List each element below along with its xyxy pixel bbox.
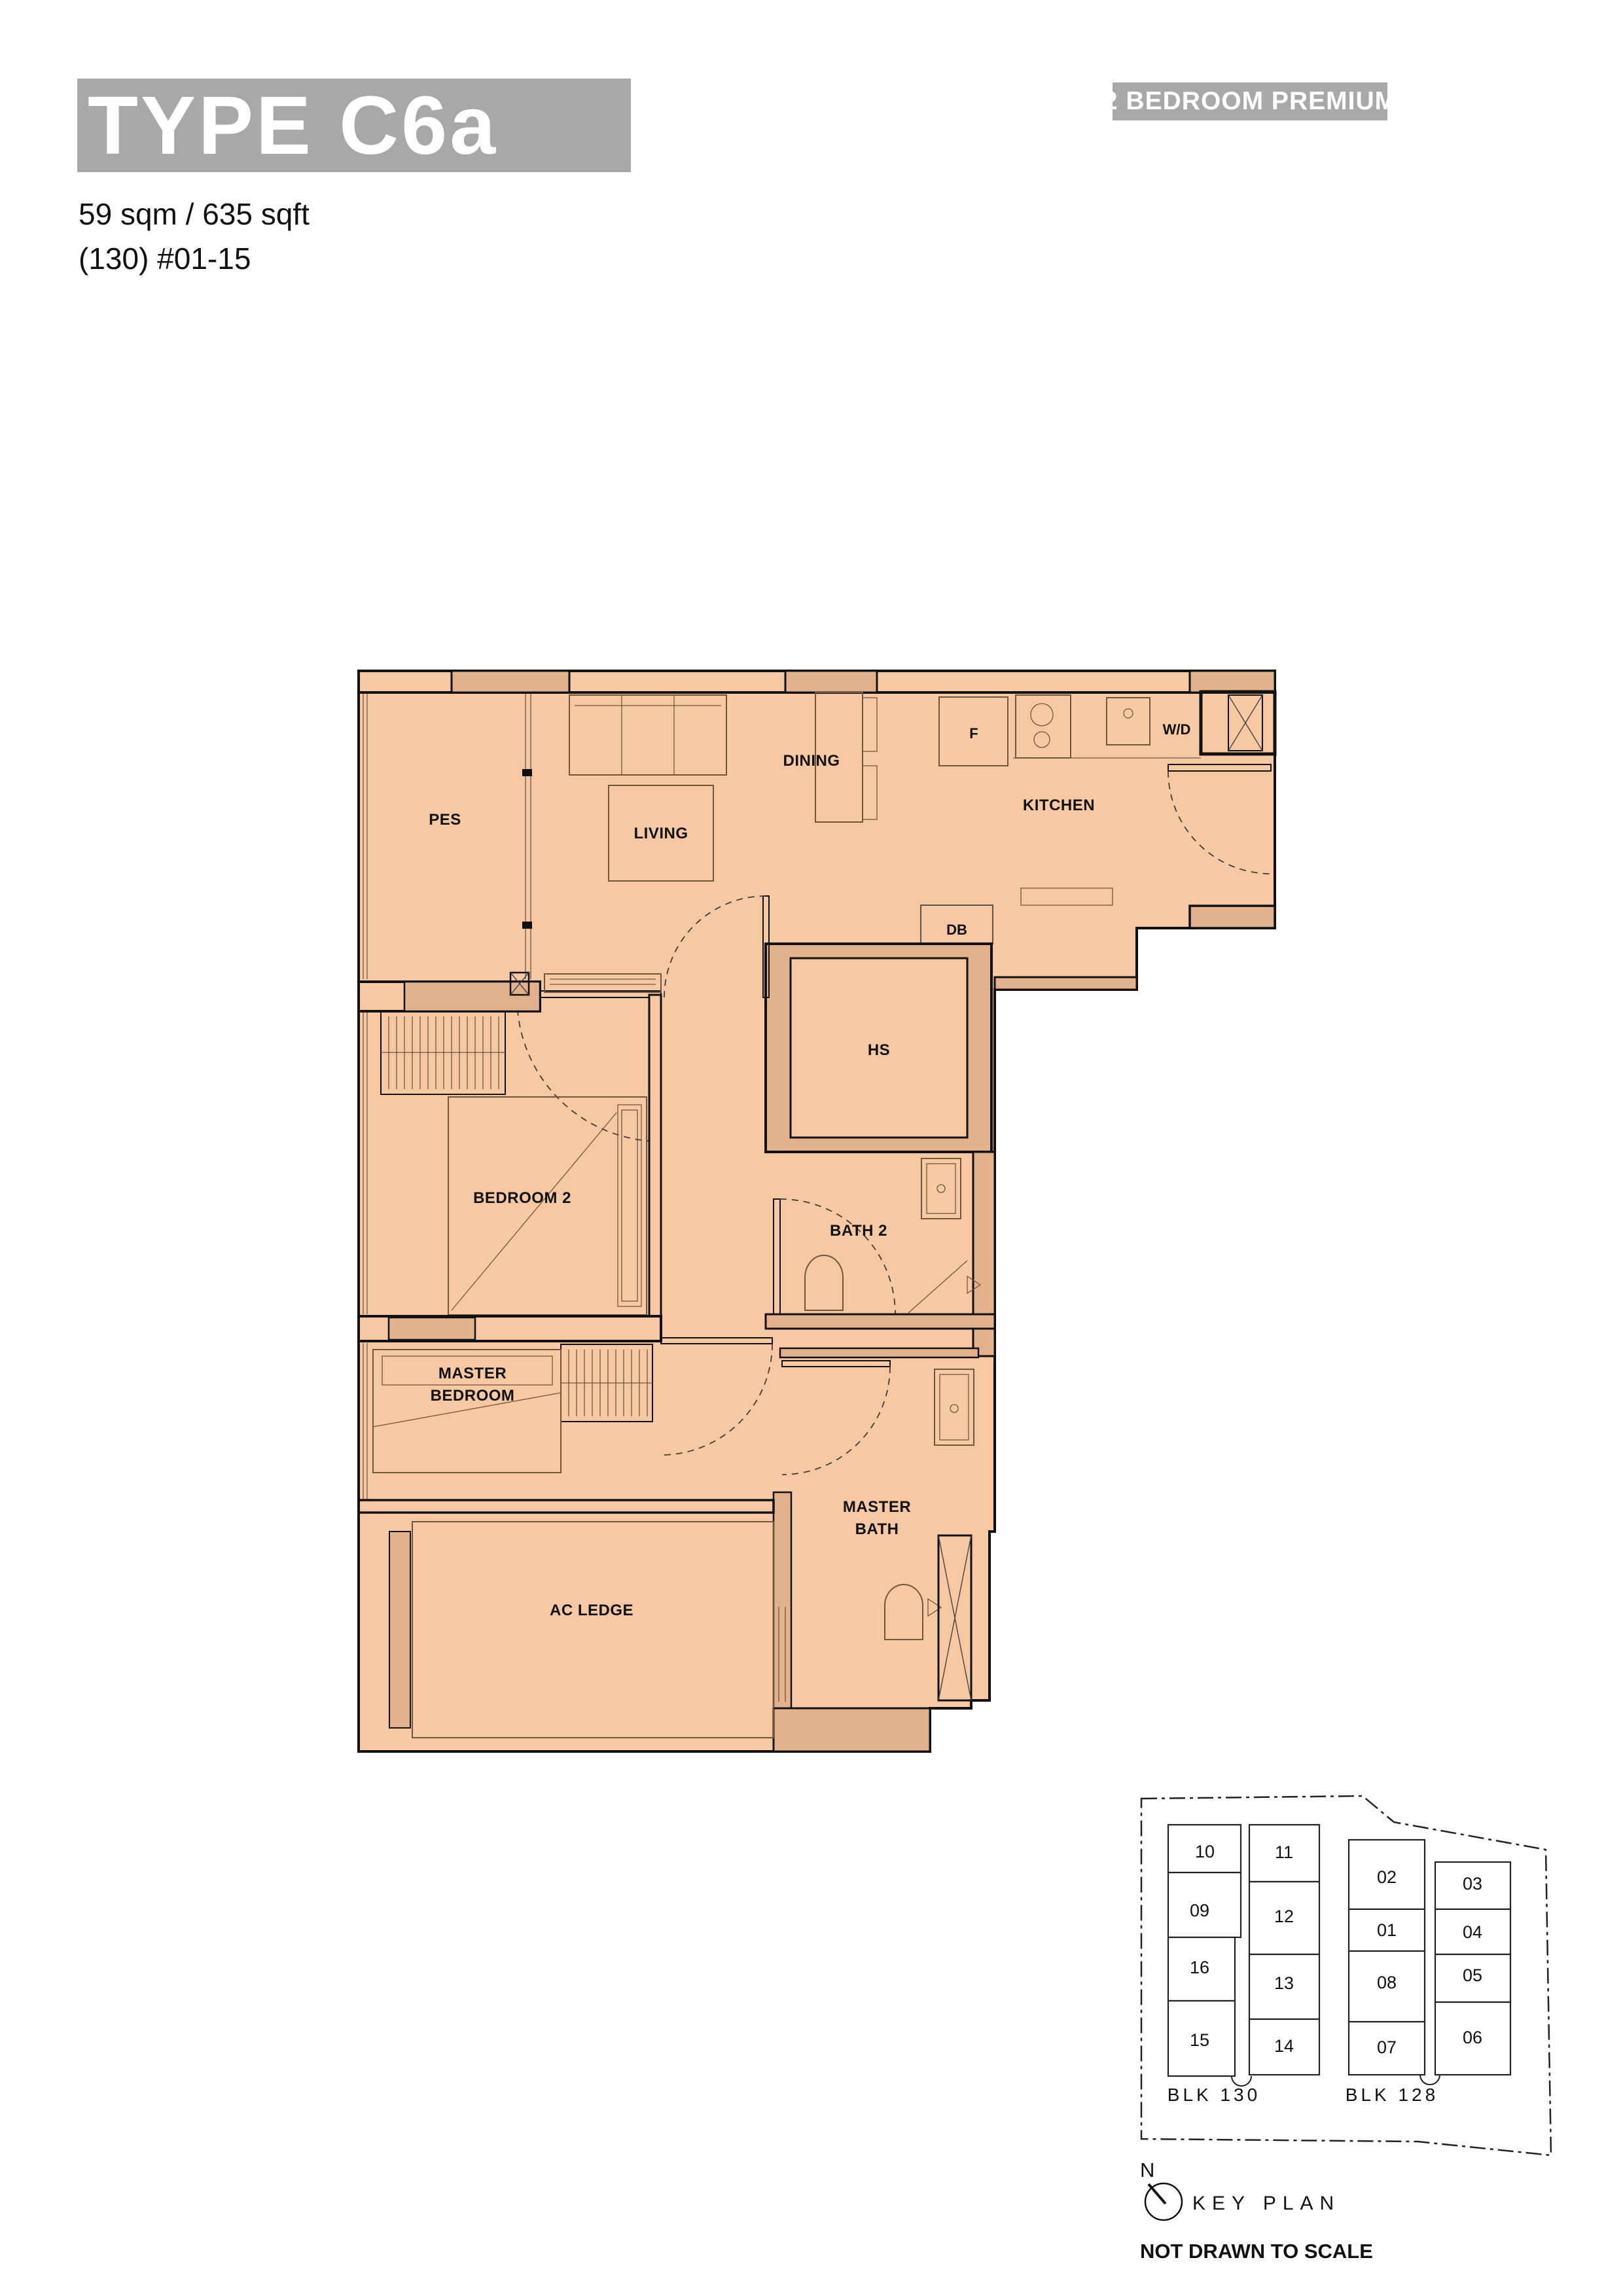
bedroom-category-badge: 2 BEDROOM PREMIUM xyxy=(1113,82,1387,120)
kp-blk-130: BLK 130 xyxy=(1168,2085,1260,2105)
badge-label: 2 BEDROOM PREMIUM xyxy=(1103,87,1397,116)
label-washer-dryer: W/D xyxy=(1163,721,1191,738)
label-bath2: BATH 2 xyxy=(830,1222,887,1240)
pes-bottom-wall-block xyxy=(404,982,540,1011)
kp-label-14: 14 xyxy=(1274,2036,1294,2056)
label-kitchen: KITCHEN xyxy=(1023,797,1095,814)
kp-label-07: 07 xyxy=(1377,2037,1397,2057)
unit-type-label: TYPE C6a xyxy=(88,78,498,173)
label-master-bath-2: BATH xyxy=(855,1520,899,1538)
unit-floor-outline xyxy=(359,671,1275,1751)
kp-arc-2 xyxy=(1420,2075,1440,2085)
label-ac-ledge: AC LEDGE xyxy=(550,1602,633,1619)
masterbath-left-wall xyxy=(774,1492,791,1708)
label-living: LIVING xyxy=(633,825,688,842)
kitchen-bottom-wall xyxy=(995,977,1137,990)
kp-label-11: 11 xyxy=(1275,1842,1293,1862)
kp-label-02: 02 xyxy=(1377,1867,1397,1887)
kp-north-label: N xyxy=(1140,2159,1154,2181)
unit-number: (130) #01-15 xyxy=(79,241,251,276)
unit-area: 59 sqm / 635 sqft xyxy=(79,196,310,232)
label-master-bedroom-1: MASTER xyxy=(438,1365,507,1382)
label-fridge: F xyxy=(969,725,978,742)
key-plan: 10 09 16 15 11 12 13 14 02 01 08 07 03 0… xyxy=(1132,1779,1564,2283)
kp-label-16: 16 xyxy=(1190,1958,1209,1977)
label-master-bath-1: MASTER xyxy=(843,1498,911,1516)
label-dining: DINING xyxy=(783,752,840,770)
kp-label-01: 01 xyxy=(1377,1920,1397,1940)
bath2-bottom-wall xyxy=(766,1314,995,1329)
kp-blk-128: BLK 128 xyxy=(1346,2085,1438,2105)
kp-label-10: 10 xyxy=(1195,1842,1215,1861)
unit-type-title: TYPE C6a xyxy=(77,79,631,172)
kp-label-08: 08 xyxy=(1377,1973,1397,1992)
kp-label-06: 06 xyxy=(1463,2028,1482,2047)
bedroom2-partition xyxy=(649,995,661,1316)
label-pes: PES xyxy=(429,811,461,829)
masterbath-top-wall xyxy=(780,1348,978,1357)
kp-label-09: 09 xyxy=(1190,1901,1209,1920)
kp-label-05: 05 xyxy=(1463,1965,1482,1985)
label-bedroom2: BEDROOM 2 xyxy=(473,1189,571,1207)
label-db: DB xyxy=(946,922,967,938)
kitchen-step-wall xyxy=(1190,906,1275,928)
kp-title: KEY PLAN xyxy=(1192,2193,1340,2214)
masterbath-bottom-wall xyxy=(774,1708,930,1751)
kp-label-13: 13 xyxy=(1274,1973,1294,1993)
label-hs: HS xyxy=(868,1041,890,1059)
kp-note: NOT DRAWN TO SCALE xyxy=(1140,2240,1373,2263)
kp-label-04: 04 xyxy=(1463,1922,1482,1942)
kp-label-12: 12 xyxy=(1274,1907,1294,1926)
north-compass-icon: N xyxy=(1140,2159,1182,2220)
kp-label-03: 03 xyxy=(1463,1874,1482,1893)
floorplan-page: TYPE C6a 2 BEDROOM PREMIUM 59 sqm / 635 … xyxy=(0,0,1623,2296)
label-master-bedroom-2: BEDROOM xyxy=(431,1387,515,1405)
kp-label-15: 15 xyxy=(1190,2030,1209,2050)
bedroom-divider-block xyxy=(389,1318,475,1340)
floor-plan: PES LIVING DINING KITCHEN F W/D DB HS BE… xyxy=(353,655,1283,1761)
